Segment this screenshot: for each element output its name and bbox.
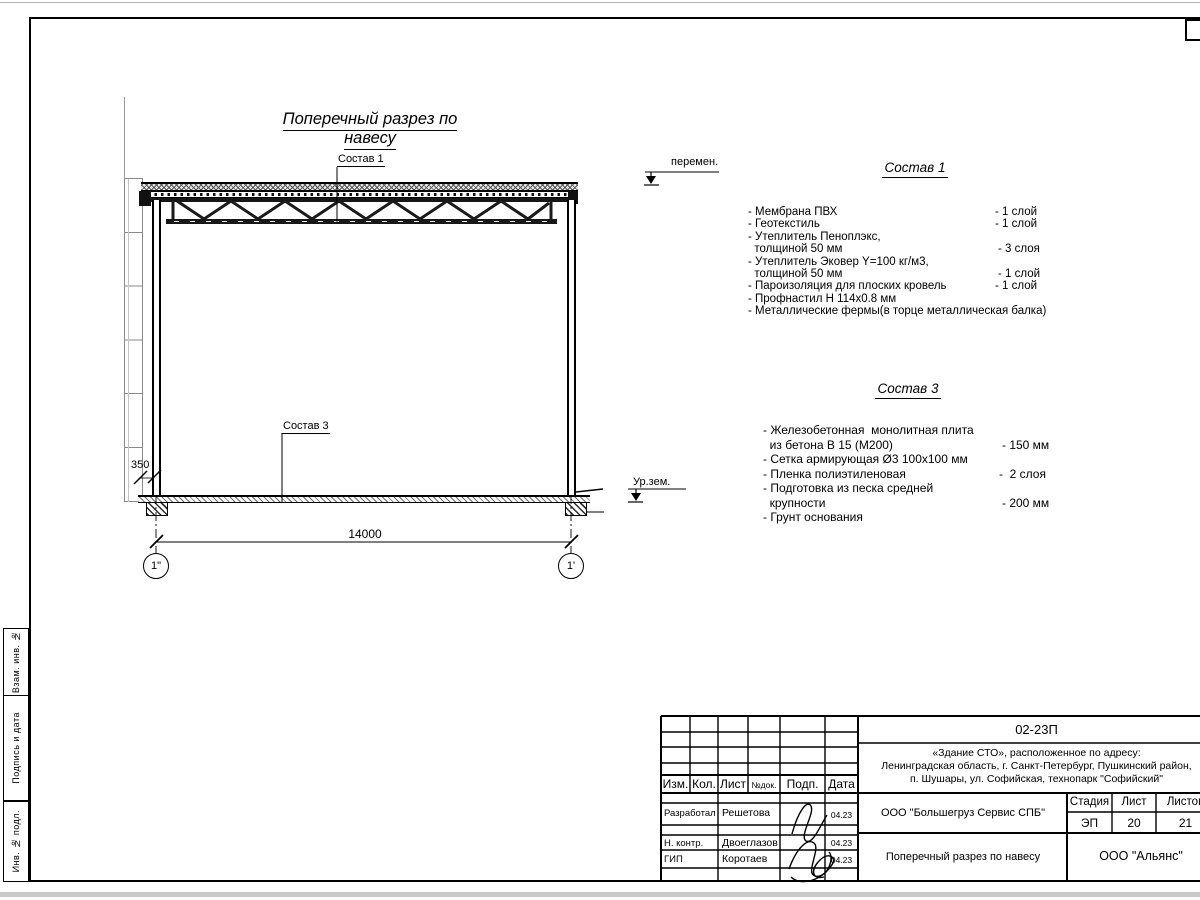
- profiled-sheet-hatch: [148, 193, 571, 196]
- truss-top-chord: [148, 198, 571, 202]
- tb-stage-value: ЭП: [1067, 816, 1112, 830]
- composition1-header-text: Состав 1: [882, 160, 949, 178]
- composition-item: толщиной 50 мм- 1 слой: [748, 268, 1168, 280]
- item-name: - Грунт основания: [763, 510, 863, 524]
- item-name: - Утеплитель Пеноплэкс,: [748, 231, 881, 243]
- tb-col-podp: Подп.: [780, 777, 825, 791]
- item-name: - Утеплитель Эковер Y=100 кг/м3,: [748, 256, 929, 268]
- item-qty: - 1 слой: [998, 268, 1040, 280]
- callout-sostav1: Состав 1: [337, 153, 385, 167]
- margin-cell-vzam: Взам. инв. №: [3, 628, 29, 696]
- item-name: толщиной 50 мм: [748, 243, 842, 255]
- item-name: - Металлические фермы(в торце металличес…: [748, 305, 1046, 317]
- top-right-stamp-cell: [1185, 19, 1200, 41]
- composition-item: - Пленка полиэтиленовая- 2 слоя: [763, 467, 1183, 482]
- dimension-350: 350: [131, 459, 149, 471]
- composition3-header: Состав 3: [852, 381, 964, 396]
- axis-bubble-right: 1': [558, 553, 584, 579]
- item-qty: - 200 мм: [1002, 496, 1049, 511]
- tb-col-kol: Кол.: [690, 777, 718, 791]
- tb-role: Разработал: [664, 808, 717, 819]
- tb-drawing-name: Поперечный разрез по навесу: [858, 851, 1068, 863]
- margin-label: Подпись и дата: [11, 712, 21, 784]
- tb-sheets-value: 21: [1156, 816, 1200, 830]
- axis-bubble-left-label: 1": [151, 560, 161, 572]
- drawing-view-title-text: Поперечный разрез по навесу: [283, 110, 458, 150]
- callout-sostav3-text: Состав 3: [283, 420, 329, 432]
- tb-date: 04.23: [826, 810, 857, 820]
- page-top-edge: [0, 2, 1200, 3]
- level-label-peremen: перемен.: [671, 156, 718, 168]
- right-foundation: [565, 502, 587, 516]
- margin-cell-inv: Инв. № подл.: [3, 800, 29, 882]
- composition-item: - Утеплитель Пеноплэкс,: [748, 231, 1168, 243]
- item-name: - Профнастил Н 114х0.8 мм: [748, 293, 896, 305]
- item-qty: - 3 слоя: [998, 243, 1040, 255]
- tb-sheet-label: Лист: [1112, 796, 1156, 808]
- composition-item: - Утеплитель Эковер Y=100 кг/м3,: [748, 256, 1168, 268]
- tb-name: Коротаев: [722, 853, 779, 865]
- composition-item: - Металлические фермы(в торце металличес…: [748, 305, 1168, 317]
- item-qty: - 150 мм: [1002, 438, 1049, 453]
- drawing-view-title: Поперечный разрез по навесу: [264, 110, 476, 148]
- tb-date: 04.23: [826, 855, 857, 865]
- level-label-ground: Ур.зем.: [633, 476, 670, 488]
- composition-item: - Профнастил Н 114х0.8 мм: [748, 293, 1168, 305]
- page-bottom-edge: [0, 892, 1200, 897]
- left-foundation: [146, 502, 168, 516]
- composition-item: из бетона В 15 (М200)- 150 мм: [763, 438, 1183, 453]
- item-name: крупности: [763, 496, 825, 510]
- composition3-list: - Железобетонная монолитная плита из бет…: [763, 423, 1183, 525]
- item-name: толщиной 50 мм: [748, 268, 842, 280]
- tb-address-line3: п. Шушары, ул. Софийская, технопарк "Соф…: [858, 773, 1200, 785]
- composition-item: - Геотекстиль- 1 слой: [748, 218, 1168, 230]
- composition-item: крупности- 200 мм: [763, 496, 1183, 511]
- item-qty: - 2 слоя: [999, 467, 1046, 482]
- callout-sostav3: Состав 3: [282, 420, 330, 434]
- composition-item: - Подготовка из песка средней: [763, 481, 1183, 496]
- tb-doc-code: 02-23П: [858, 722, 1200, 737]
- dimension-14000: 14000: [320, 527, 410, 541]
- item-name: - Геотекстиль: [748, 218, 820, 230]
- drawing-sheet: Взам. инв. № Подпись и дата Инв. № подл.…: [0, 0, 1200, 900]
- left-column: [152, 200, 161, 495]
- tb-contractor: ООО "Большегруз Сервис СПБ": [858, 807, 1068, 819]
- composition-item: толщиной 50 мм- 3 слоя: [748, 243, 1168, 255]
- margin-label: Взам. инв. №: [11, 631, 21, 693]
- item-name: из бетона В 15 (М200): [763, 438, 893, 452]
- tb-role: Н. контр.: [664, 838, 717, 849]
- tb-address-line1: «Здание СТО», расположенное по адресу:: [858, 747, 1200, 759]
- item-name: - Пароизоляция для плоских кровель: [748, 280, 947, 292]
- composition1-list: - Мембрана ПВХ- 1 слой - Геотекстиль- 1 …: [748, 206, 1168, 318]
- tb-stage-label: Стадия: [1067, 796, 1112, 808]
- margin-label: Инв. № подл.: [11, 810, 21, 872]
- axis-bubble-left: 1": [143, 553, 169, 579]
- tb-name: Двоеглазов: [722, 837, 779, 849]
- tb-col-data: Дата: [825, 777, 858, 791]
- composition-item: - Пароизоляция для плоских кровель- 1 сл…: [748, 280, 1168, 292]
- tb-role: ГИП: [664, 854, 717, 865]
- item-name: - Железобетонная монолитная плита: [763, 423, 974, 437]
- item-qty: - 1 слой: [995, 280, 1037, 292]
- tb-sheets-label: Листов: [1156, 796, 1200, 808]
- tb-designer: ООО "Альянс": [1067, 849, 1200, 863]
- item-name: - Мембрана ПВХ: [748, 206, 837, 218]
- composition1-header: Состав 1: [859, 160, 971, 175]
- roof-profiled-sheet: [148, 191, 571, 198]
- truss-bottom-chord: [166, 219, 557, 224]
- item-name: - Подготовка из песка средней: [763, 481, 933, 495]
- composition3-header-text: Состав 3: [875, 381, 942, 399]
- composition-item: - Сетка армирующая Ø3 100х100 мм: [763, 452, 1183, 467]
- composition-item: - Мембрана ПВХ- 1 слой: [748, 206, 1168, 218]
- adjacent-wall-line: [124, 97, 125, 178]
- margin-cell-podp: Подпись и дата: [3, 695, 29, 802]
- tb-col-list: Лист: [718, 777, 748, 791]
- roof-left-end-beam: [139, 191, 151, 206]
- item-name: - Пленка полиэтиленовая: [763, 467, 906, 481]
- tb-col-ndok: №док.: [748, 780, 780, 790]
- composition-item: - Грунт основания: [763, 510, 1183, 525]
- tb-name: Решетова: [722, 807, 779, 819]
- roof-membrane-layer: [141, 182, 578, 191]
- composition-item: - Железобетонная монолитная плита: [763, 423, 1183, 438]
- item-name: - Сетка армирующая Ø3 100х100 мм: [763, 452, 968, 466]
- tb-sheet-value: 20: [1112, 816, 1156, 830]
- tb-col-izm: Изм.: [661, 777, 690, 791]
- item-qty: - 1 слой: [995, 218, 1037, 230]
- right-column: [567, 200, 576, 495]
- floor-slab: [138, 495, 590, 503]
- item-qty: - 1 слой: [995, 206, 1037, 218]
- axis-bubble-right-label: 1': [567, 560, 575, 572]
- tb-address-line2: Ленинградская область, г. Санкт-Петербур…: [858, 760, 1200, 772]
- adjacent-wall-inner-line: [128, 179, 129, 502]
- bottom-chord-dashes: [174, 221, 549, 223]
- adjacent-wall-section: [124, 178, 143, 502]
- callout-sostav1-text: Состав 1: [338, 153, 384, 165]
- tb-date: 04.23: [826, 838, 857, 848]
